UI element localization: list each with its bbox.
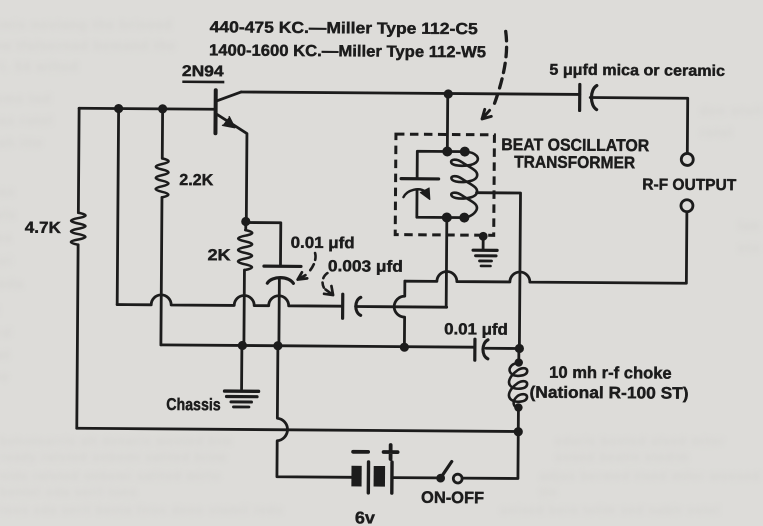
- svg-text:4.7K: 4.7K: [25, 220, 62, 237]
- svg-text:10 mh r-f choke: 10 mh r-f choke: [549, 364, 672, 383]
- svg-text:1400-1600 KC.—Miller Type 112-: 1400-1600 KC.—Miller Type 112-W5: [209, 42, 486, 61]
- svg-text:ON-OFF: ON-OFF: [421, 489, 484, 507]
- svg-text:R-F OUTPUT: R-F OUTPUT: [642, 177, 736, 195]
- svg-text:5 μμfd mica or ceramic: 5 μμfd mica or ceramic: [549, 62, 725, 80]
- svg-text:2N94: 2N94: [182, 63, 224, 80]
- svg-text:0.01 μfd: 0.01 μfd: [444, 321, 508, 338]
- svg-text:0.01 μfd: 0.01 μfd: [291, 235, 355, 252]
- svg-text:440-475 KC.—Miller Type 112-C5: 440-475 KC.—Miller Type 112-C5: [210, 19, 478, 38]
- svg-text:TRANSFORMER: TRANSFORMER: [514, 152, 635, 172]
- svg-text:6v: 6v: [355, 508, 376, 526]
- svg-text:(National R-100 ST): (National R-100 ST): [529, 384, 688, 403]
- svg-text:0.003 μfd: 0.003 μfd: [328, 258, 403, 276]
- svg-text:2K: 2K: [207, 247, 231, 264]
- svg-text:Chassis: Chassis: [166, 395, 221, 414]
- svg-text:2.2K: 2.2K: [179, 172, 214, 189]
